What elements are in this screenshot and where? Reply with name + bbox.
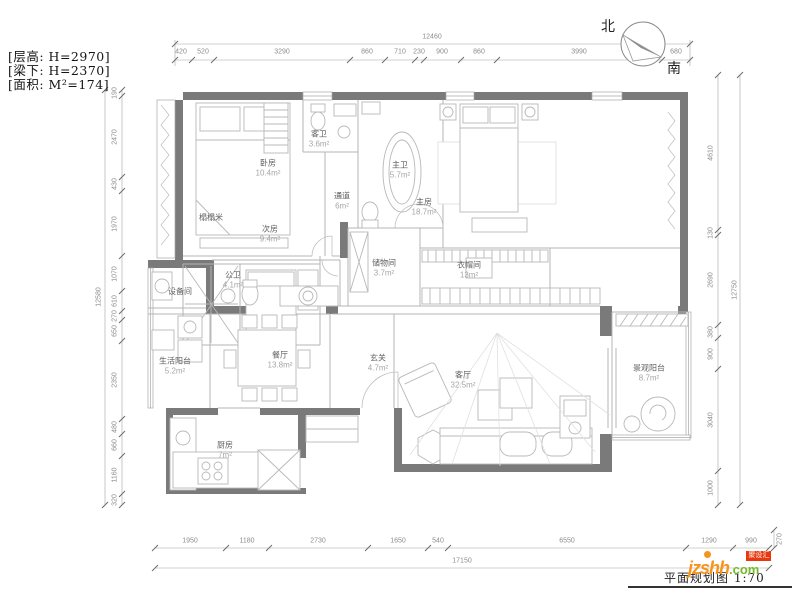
dim-bottom-seg-2: 2730 (310, 538, 326, 545)
dim-left-seg-11: 1160 (112, 467, 119, 482)
dim-top-seg-3: 860 (361, 49, 373, 56)
title-underline (628, 586, 792, 588)
dim-top-seg-6: 900 (436, 49, 448, 56)
dim-top-seg-1: 520 (197, 49, 209, 56)
dim-top-seg-7: 860 (473, 49, 485, 56)
room-label-second-bedroom: 次房9.4m² (260, 224, 280, 243)
dim-left-seg-1: 2470 (112, 129, 119, 145)
note-floor-area: [面积: M²=174] (8, 78, 110, 92)
room-label-view-balcony: 景观阳台8.7m² (633, 363, 665, 382)
service-balcony-fixtures (152, 316, 202, 362)
kitchen-fixtures (170, 418, 300, 490)
plan-info-notes: [层高: H=2970] [梁下: H=2370] [面积: M²=174] (8, 50, 110, 92)
compass-south-label: 南 (667, 58, 681, 78)
room-label-equipment: 设备间 (168, 287, 192, 297)
dim-top-seg-4: 710 (394, 49, 406, 56)
dim-right-seg-1: 130 (708, 227, 715, 239)
watermark: jzshh.com 聚设汇 (688, 558, 759, 579)
room-label-storage: 储物间3.7m² (372, 258, 396, 277)
dim-bottom-total: 17150 (452, 558, 471, 565)
dim-top-seg-0: 420 (175, 49, 187, 56)
dim-left-seg-12: 320 (112, 494, 119, 506)
room-label-public-bath: 公卫4.1m² (223, 270, 243, 289)
dim-left-seg-3: 1970 (112, 216, 119, 232)
watermark-badge: 聚设汇 (746, 551, 771, 561)
compass-north-label: 北 (601, 16, 615, 36)
dim-bottom-seg-6: 1290 (701, 538, 717, 545)
watermark-text: jzshh (688, 558, 729, 578)
floor-plan-page: [层高: H=2970] [梁下: H=2370] [面积: M²=174] 北… (0, 0, 800, 597)
dim-bottom-seg-4: 540 (432, 538, 444, 545)
dim-right-total: 12750 (732, 280, 739, 299)
dim-right-seg-2: 2690 (708, 272, 715, 288)
dim-top-total: 12460 (422, 34, 441, 41)
dim-top-seg-8: 3990 (571, 49, 587, 56)
room-label-entry: 玄关4.7m² (368, 353, 388, 372)
room-label-guest-bath: 客卫3.6m² (309, 129, 329, 148)
dim-bottom-seg-0: 1950 (182, 538, 198, 545)
dim-right-seg-4: 900 (708, 348, 715, 360)
dim-left-total: 12580 (96, 287, 103, 306)
dim-left-seg-10: 660 (112, 439, 119, 451)
room-label-bedroom: 卧房10.4m² (256, 158, 281, 177)
room-label-master-bedroom: 主房18.7m² (412, 197, 437, 216)
dim-right-seg-0: 4610 (708, 145, 715, 161)
watermark-dot (704, 551, 711, 558)
watermark-suffix: .com (729, 562, 759, 577)
dim-right-seg-3: 380 (708, 326, 715, 338)
room-label-dining: 餐厅13.8m² (268, 350, 293, 369)
dim-left-seg-9: 480 (112, 421, 119, 433)
room-label-living: 客厅32.5m² (451, 370, 476, 389)
dim-bottom-seg-1: 1180 (239, 538, 254, 545)
dim-bottom-seg-5: 6550 (559, 538, 575, 545)
dim-left-seg-4: 1070 (112, 266, 119, 282)
master-bedroom-furniture (438, 104, 556, 232)
floor-plan-svg (0, 0, 800, 597)
note-beam-height: [梁下: H=2370] (8, 64, 110, 78)
dim-bottom-seg-3: 1650 (390, 538, 406, 545)
dim-left-seg-5: 610 (112, 295, 119, 307)
dim-left-seg-8: 2350 (112, 372, 119, 388)
room-label-master-bath: 主卫5.7m² (390, 160, 410, 179)
room-label-corridor: 通道6m² (334, 191, 350, 210)
room-label-tatami: 榻榻米 (199, 213, 223, 223)
dim-top-seg-5: 230 (413, 49, 425, 56)
note-ceiling-height: [层高: H=2970] (8, 50, 110, 64)
dim-bottom-side: 270 (777, 533, 784, 545)
room-label-walkin-closet: 衣帽间13m² (457, 260, 481, 279)
room-label-kitchen: 厨房7m² (217, 440, 233, 459)
dim-left-seg-6: 270 (112, 310, 119, 322)
room-label-service-balcony: 生活阳台5.2m² (159, 356, 191, 375)
dim-left-seg-0: 190 (112, 87, 119, 99)
dim-left-seg-7: 650 (112, 325, 119, 337)
dim-right-seg-6: 1000 (708, 480, 715, 496)
dim-top-seg-2: 3290 (274, 49, 290, 56)
dim-bottom-seg-7: 990 (745, 538, 757, 545)
dim-left-seg-2: 430 (112, 178, 119, 190)
entry-porch (306, 416, 358, 442)
dim-top-seg-9: 680 (670, 49, 682, 56)
compass-icon (621, 22, 665, 66)
dim-right-seg-5: 3040 (708, 412, 715, 428)
